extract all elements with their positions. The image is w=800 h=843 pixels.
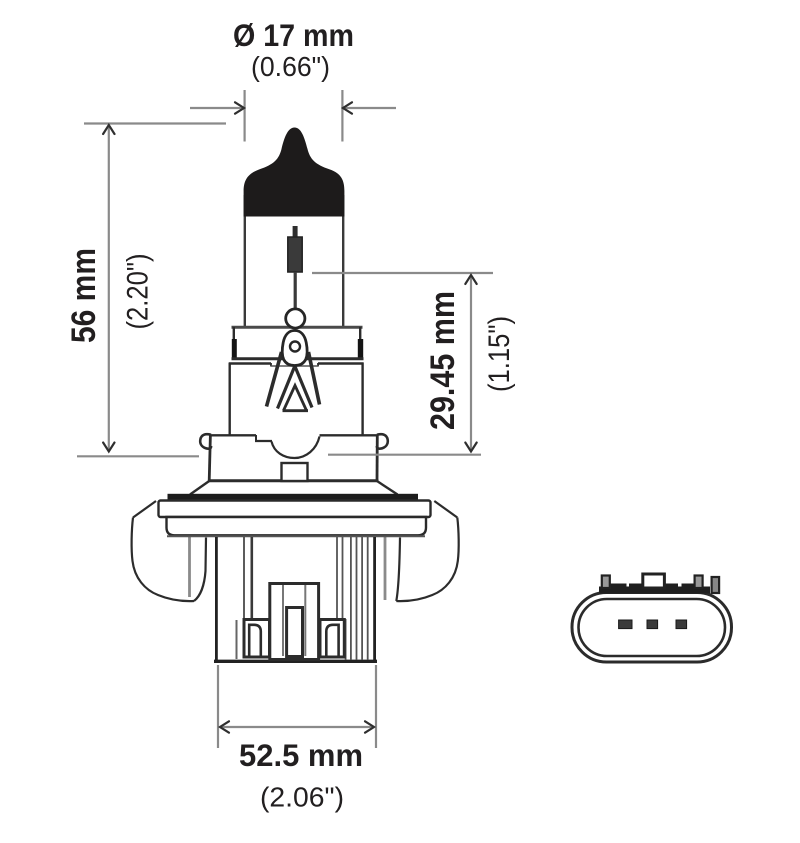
svg-text:Ø 17 mm: Ø 17 mm <box>233 17 354 53</box>
svg-text:56 mm: 56 mm <box>65 248 103 343</box>
svg-text:(1.15"): (1.15") <box>483 316 516 392</box>
svg-text:(0.66"): (0.66") <box>251 51 330 82</box>
svg-text:(2.20"): (2.20") <box>122 254 155 330</box>
svg-text:52.5 mm: 52.5 mm <box>239 737 363 773</box>
svg-text:29.45 mm: 29.45 mm <box>424 291 462 430</box>
svg-text:(2.06"): (2.06") <box>260 782 344 813</box>
